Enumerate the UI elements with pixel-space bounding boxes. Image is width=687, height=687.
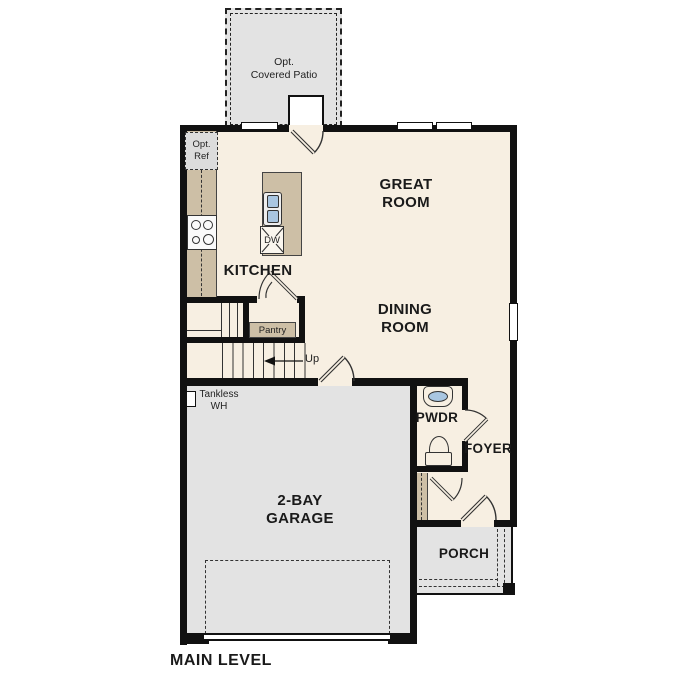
vanity-sink-oval (428, 391, 448, 402)
pantry-label: Pantry (259, 325, 286, 336)
porch-dashed-h2 (419, 586, 505, 587)
burner-icon (203, 234, 214, 245)
great-room-window-1 (397, 122, 433, 130)
pantry-shelf: Pantry (249, 322, 296, 338)
porch-dashed-h1 (419, 579, 498, 580)
burner-icon (203, 220, 213, 230)
opt-ref-label: Opt. Ref (185, 139, 218, 162)
dining-window (509, 303, 518, 341)
front-wall-left (410, 520, 461, 527)
pwdr-right-wall-upper (462, 378, 468, 410)
burner-icon (191, 220, 201, 230)
kitchen-label: KITCHEN (212, 262, 304, 280)
up-label: Up (305, 353, 319, 365)
garage-door (204, 633, 390, 641)
dishwasher: DW (260, 226, 284, 254)
garage-entry-opening (318, 378, 352, 386)
stove (187, 215, 217, 250)
closet-shelf (417, 473, 428, 520)
kitchen-window (241, 122, 278, 130)
closet-rod-dashed (421, 473, 422, 520)
island-sink (263, 192, 282, 226)
floor-plan: Opt. Covered Patio Opt. Ref (0, 0, 687, 687)
porch-label: PORCH (416, 546, 512, 562)
patio-door-frame (288, 95, 324, 127)
sink-basin (267, 210, 279, 223)
tankless-water-heater (186, 391, 196, 407)
dining-room-label: DINING ROOM (355, 301, 455, 337)
great-room-label: GREAT ROOM (355, 176, 457, 212)
dishwasher-label: DW (264, 235, 280, 246)
toilet-tank (425, 452, 452, 466)
burner-icon (192, 236, 200, 244)
great-room-window-2 (436, 122, 472, 130)
pantry-right-wall (299, 296, 305, 343)
pwdr-vanity (423, 386, 453, 407)
pantry-door-opening (257, 296, 297, 303)
sink-basin (267, 195, 279, 208)
stairs-landing-line (187, 330, 221, 331)
page-title: MAIN LEVEL (170, 652, 272, 670)
pwdr-bottom-wall (417, 466, 468, 472)
garage-door-track-dashed (205, 560, 390, 634)
patio-label: Opt. Covered Patio (227, 56, 341, 82)
tankless-label: Tankless WH (196, 389, 242, 413)
pwdr-label: PWDR (411, 410, 463, 426)
patio-door-opening (289, 125, 323, 132)
stairs-lower-treads (222, 343, 306, 378)
front-wall-right (494, 520, 517, 527)
foyer-label: FOYER (461, 441, 515, 457)
stairs-upper-treads (221, 303, 240, 337)
porch-post (503, 583, 515, 595)
garage-label: 2-BAY GARAGE (249, 492, 351, 528)
